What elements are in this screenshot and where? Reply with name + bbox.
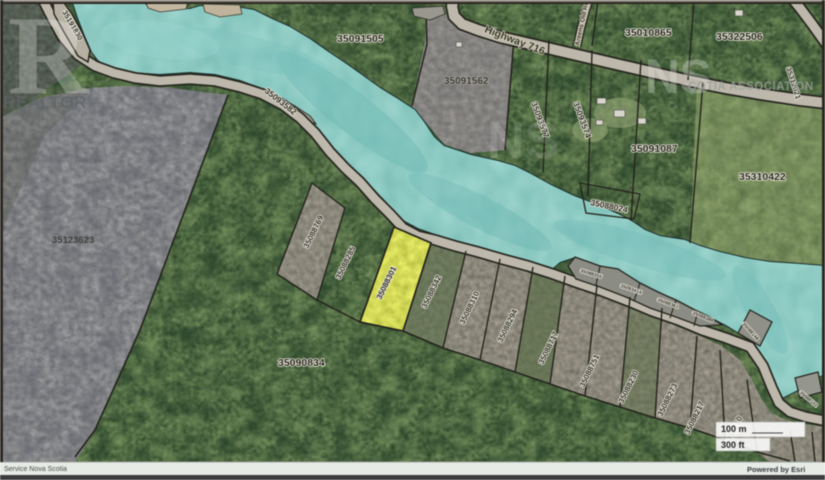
svg-text:Service Nova Scotia: Service Nova Scotia xyxy=(4,466,67,473)
svg-text:300 ft: 300 ft xyxy=(721,440,745,450)
svg-text:COTIA ASSOCIATION: COTIA ASSOCIATION xyxy=(688,81,814,93)
svg-text:35091562: 35091562 xyxy=(444,76,489,87)
svg-text:35010865: 35010865 xyxy=(625,27,672,39)
svg-text:35123623: 35123623 xyxy=(52,235,94,246)
svg-text:35091087: 35091087 xyxy=(631,143,678,155)
svg-text:35090834: 35090834 xyxy=(278,357,325,369)
svg-text:REALTOR®: REALTOR® xyxy=(3,93,94,112)
svg-text:NS: NS xyxy=(645,51,712,104)
svg-text:35091505: 35091505 xyxy=(337,33,384,45)
svg-text:100 m: 100 m xyxy=(721,424,747,434)
svg-text:NS: NS xyxy=(487,112,559,170)
svg-text:35322506: 35322506 xyxy=(716,31,763,43)
svg-text:Powered by Esri: Powered by Esri xyxy=(747,465,805,474)
svg-text:35310422: 35310422 xyxy=(739,171,786,183)
